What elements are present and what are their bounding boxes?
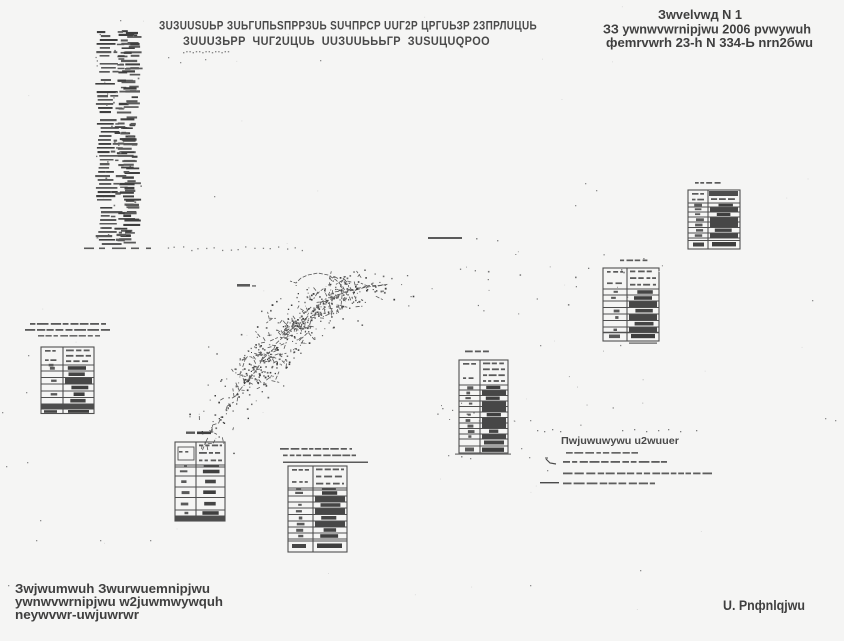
svg-text:ЗЗ уwnwvwrnipjwu 2006 pvwуwuh: ЗЗ уwnwvwrnipjwu 2006 pvwуwuh — [603, 23, 811, 37]
svg-text:Зwvelvwд N 1: Зwvelvwд N 1 — [658, 8, 742, 22]
svg-text:U. Pnфnlqjwu: U. Pnфnlqjwu — [723, 598, 805, 613]
svg-text:nеуwvwr-uwjuwrwr: nеуwvwr-uwjuwrwr — [15, 607, 139, 622]
svg-text:ЗUЗUUSUЬР ЗUЬГUПЬSПРРЗUЬ SUЧПР: ЗUЗUUSUЬР ЗUЬГUПЬSПРРЗUЬ SUЧПРCР UUГ2Р Ц… — [159, 21, 537, 33]
svg-text:ЗUUUЗЬPР ЧUГ2UЦUЬ UUЗUUЬЬЬГР: ЗUUUЗЬPР ЧUГ2UЦUЬ UUЗUUЬЬЬГР ЗUSUЦUQРOО — [183, 36, 490, 48]
svg-text:Пwjuwuwуwu u2wuuer: Пwjuwuwуwu u2wuuer — [561, 435, 679, 447]
svg-text:фemrvwrh 23-h N 334-Ь nrn2бw: фemrvwrh 23-h N 334-Ь nrn2бwu — [606, 36, 813, 50]
